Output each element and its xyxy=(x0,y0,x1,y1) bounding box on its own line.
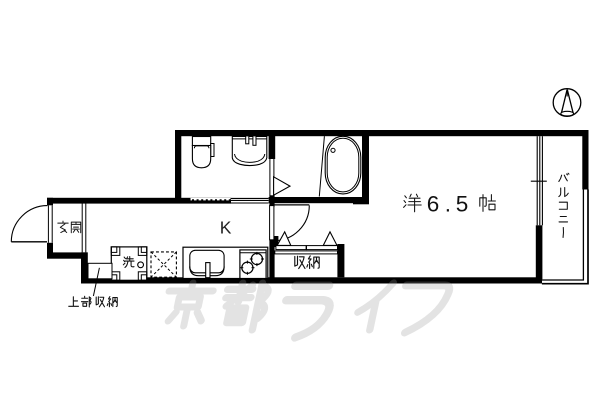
svg-text:5: 5 xyxy=(456,192,469,217)
svg-text:6: 6 xyxy=(427,192,440,217)
svg-text:K: K xyxy=(220,217,232,237)
svg-text:.: . xyxy=(445,192,451,217)
